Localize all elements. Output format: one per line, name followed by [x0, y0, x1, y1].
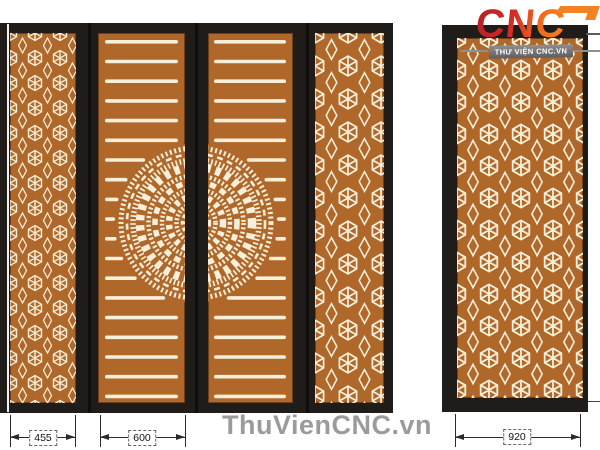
dim-arrow-right-icon: [571, 434, 580, 440]
side-panel-frame: [442, 25, 588, 412]
banner-line: [574, 50, 600, 52]
leader-line-bottom-right: [588, 401, 600, 402]
pattern-panel-right: [315, 33, 384, 403]
frame-edge-highlight: [7, 24, 9, 412]
door-leaf-left: [98, 33, 185, 403]
pattern-svg: [10, 33, 76, 403]
watermark: ThuVienCNC.vn: [222, 410, 432, 441]
pattern-svg: [315, 33, 384, 403]
pattern-panel-left: [10, 33, 76, 403]
dim-arrow-right-icon: [176, 434, 185, 440]
door-leaf-svg: [208, 33, 293, 403]
logo-swoosh-icon: [556, 6, 599, 13]
door-leaf-right: [208, 33, 293, 403]
cnc-logo: CNC THƯ VIỆN CNC.VN: [468, 2, 600, 62]
extension-line: [75, 415, 76, 447]
pattern-svg: [457, 38, 583, 398]
cnc-logo-text: CNC: [474, 4, 568, 44]
dim-label: 920: [503, 429, 531, 445]
dim-arrow-left-icon: [10, 434, 19, 440]
extension-line: [580, 414, 581, 447]
pattern-panel-side: [457, 38, 583, 398]
frame-seam: [88, 23, 91, 413]
logo-banner: THƯ VIỆN CNC.VN: [489, 44, 573, 58]
extension-line: [10, 415, 11, 447]
extension-line: [100, 415, 101, 447]
dim-label: 600: [128, 430, 156, 446]
dim-arrow-left-icon: [100, 434, 109, 440]
left-gate-frame: [0, 23, 393, 413]
extension-line: [185, 415, 186, 447]
door-leaf-svg: [98, 33, 185, 403]
dim-arrow-right-icon: [66, 434, 75, 440]
extension-line: [455, 414, 456, 447]
frame-seam: [195, 23, 198, 413]
frame-seam: [306, 23, 309, 413]
design-canvas: CNC THƯ VIỆN CNC.VN ThuVienCNC.vn 455 60…: [0, 0, 600, 450]
dim-label: 455: [29, 430, 57, 446]
dim-arrow-left-icon: [455, 434, 464, 440]
banner-line: [460, 50, 488, 52]
